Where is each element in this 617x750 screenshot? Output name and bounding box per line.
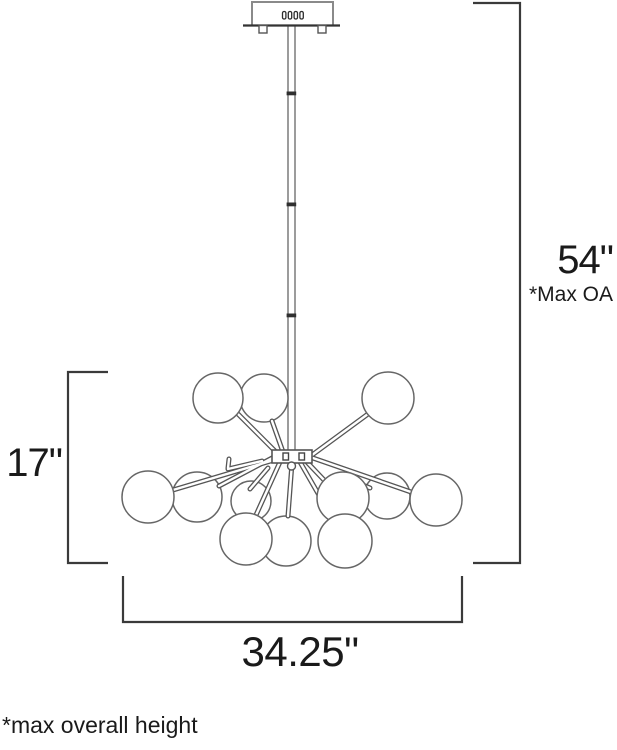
dim-bracket-width (123, 576, 462, 622)
canopy-tab-left (259, 26, 267, 34)
dim-bracket-overall-height (473, 3, 520, 563)
hub-finial (288, 462, 296, 470)
canopy-tab-right (318, 26, 326, 34)
diagram-canvas: 54" *Max OA 17" 34.25" *max overall heig… (0, 0, 617, 750)
glass-globe (240, 374, 288, 422)
overall-height-note: *Max OA (529, 283, 613, 307)
glass-globe (193, 373, 243, 423)
glass-globe (220, 513, 272, 565)
footnote-text: *max overall height (2, 712, 198, 739)
fixture-width-label: 34.25" (170, 628, 430, 676)
glass-globe (122, 471, 174, 523)
dim-bracket-fixture-height (68, 372, 108, 563)
glass-globe (362, 372, 414, 424)
hanging-rod (288, 25, 295, 451)
overall-height-label: 54" *Max OA (529, 238, 613, 307)
glass-globe (410, 474, 462, 526)
glass-globe (318, 514, 372, 568)
overall-height-value: 54" (529, 238, 613, 282)
fixture-height-label: 17" (0, 441, 62, 486)
